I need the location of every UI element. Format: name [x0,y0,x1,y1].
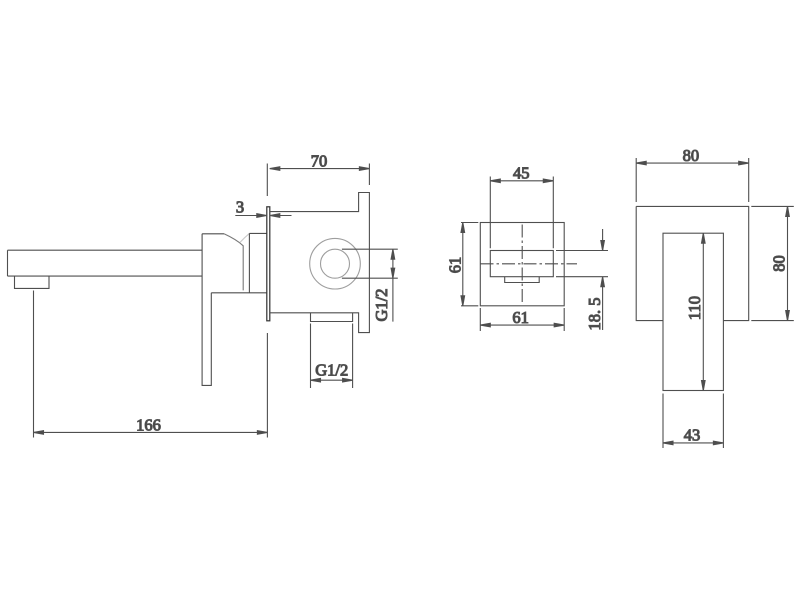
svg-text:166: 166 [136,415,161,434]
svg-text:61: 61 [446,257,465,274]
svg-text:18. 5: 18. 5 [585,298,604,331]
svg-text:80: 80 [769,255,788,272]
svg-text:61: 61 [512,308,529,327]
svg-text:45: 45 [513,164,530,183]
svg-text:G1/2: G1/2 [315,361,348,380]
svg-text:3: 3 [236,198,244,217]
svg-text:110: 110 [685,296,704,320]
svg-text:70: 70 [311,152,328,171]
svg-text:43: 43 [684,426,701,445]
svg-text:80: 80 [683,146,700,165]
svg-text:G1/2: G1/2 [372,289,391,322]
